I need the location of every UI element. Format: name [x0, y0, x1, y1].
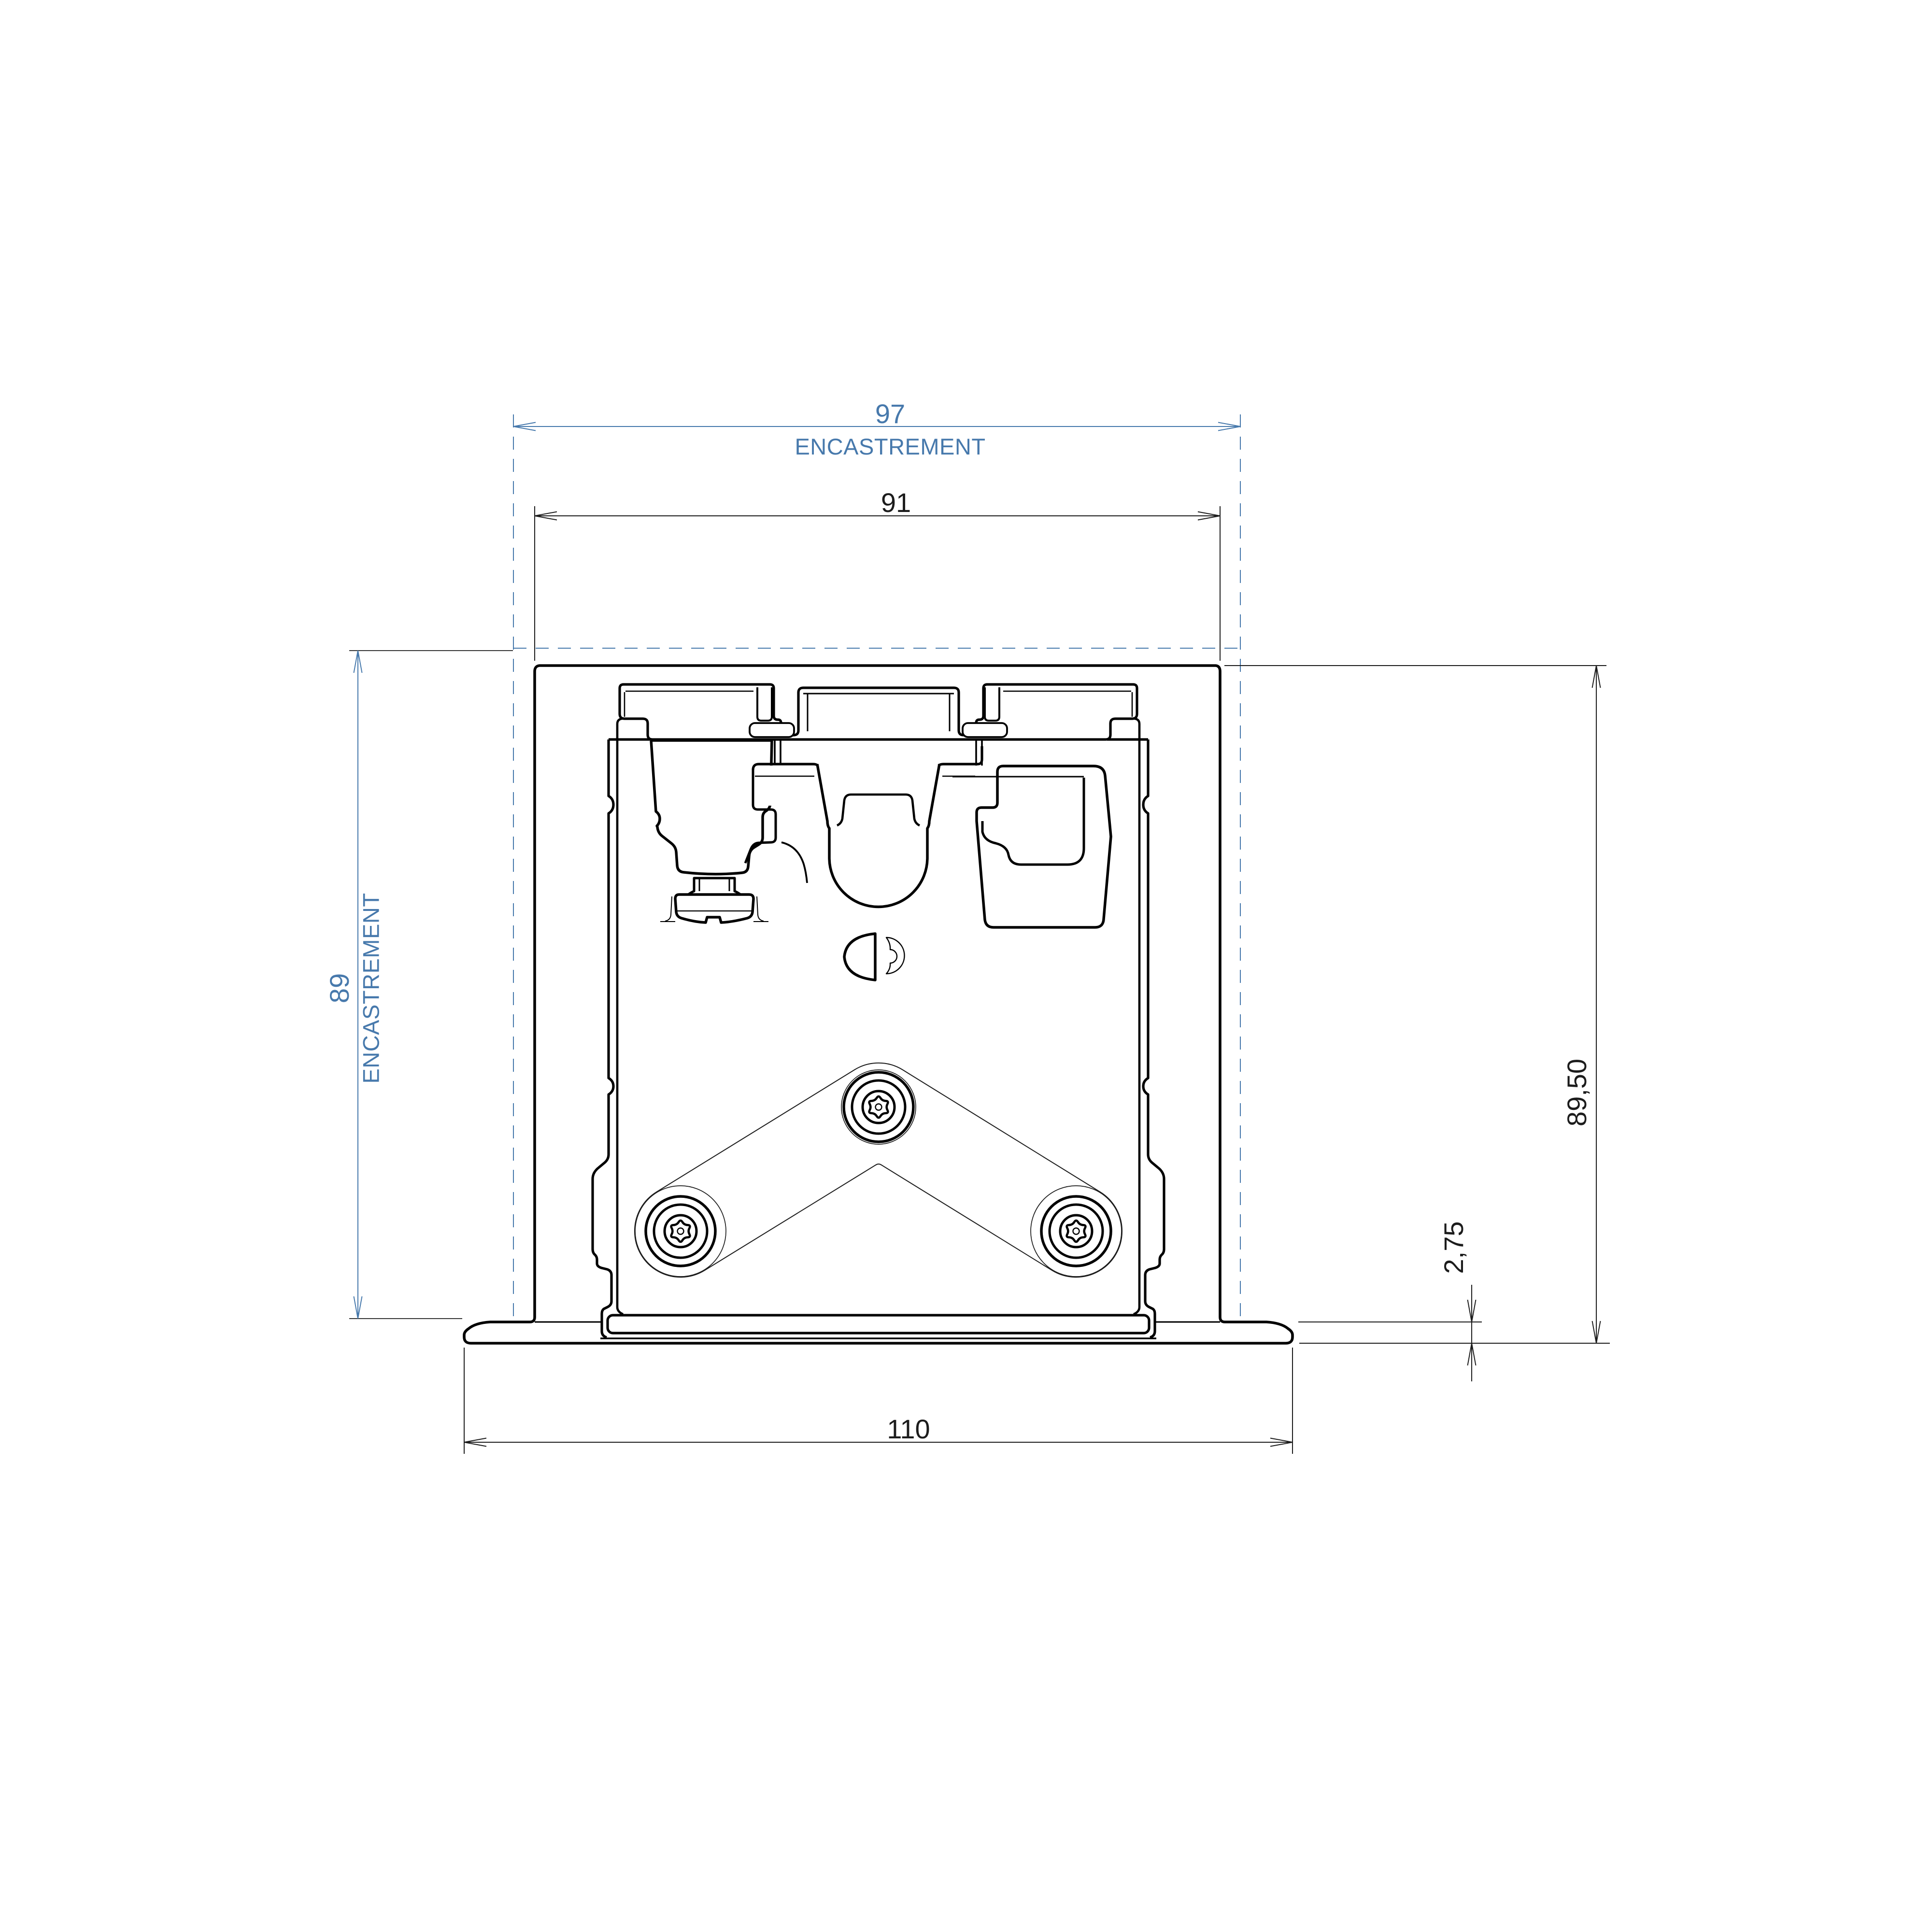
svg-text:91: 91 [881, 487, 911, 518]
svg-text:89: 89 [324, 973, 355, 1003]
svg-text:ENCASTREMENT: ENCASTREMENT [358, 893, 384, 1083]
svg-text:89,50: 89,50 [1562, 1059, 1592, 1126]
svg-text:110: 110 [887, 1414, 930, 1444]
svg-text:2,75: 2,75 [1438, 1222, 1469, 1274]
svg-text:ENCASTREMENT: ENCASTREMENT [795, 434, 985, 459]
svg-text:97: 97 [875, 398, 905, 429]
